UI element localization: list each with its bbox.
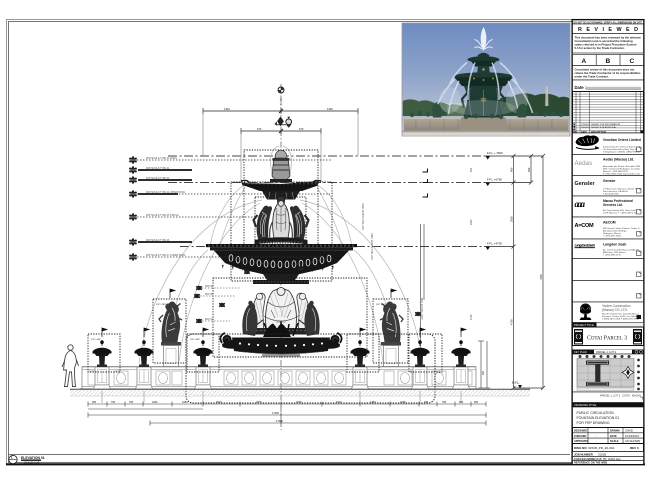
svg-text:12/04/2016: 12/04/2016 <box>625 434 639 438</box>
svg-text:880: 880 <box>482 370 485 375</box>
svg-text:FRP TIER HEIGHT 2870: FRP TIER HEIGHT 2870 <box>362 203 365 230</box>
svg-text:FRP MOULD TYPE 02: FRP MOULD TYPE 02 <box>146 168 170 170</box>
svg-text:2030: 2030 <box>510 216 514 222</box>
svg-text:SCALE 1:25: SCALE 1:25 <box>24 460 40 464</box>
svg-text:-: - <box>596 439 597 443</box>
svg-text:R E V I E W E D: R E V I E W E D <box>578 27 638 33</box>
svg-text:under the Trade Contract.: under the Trade Contract. <box>575 74 609 78</box>
svg-text:840: 840 <box>527 167 531 172</box>
svg-text:1280: 1280 <box>182 401 188 404</box>
svg-text:T +853 2872 3362: T +853 2872 3362 <box>603 236 622 238</box>
svg-text:20/04/16: 20/04/16 <box>581 127 590 129</box>
svg-text:B: B <box>606 58 611 65</box>
svg-text:DRAWING TITLE: DRAWING TITLE <box>575 403 597 407</box>
svg-text:CAD FILE NAME: CAD FILE NAME <box>574 457 595 461</box>
svg-text:Venetian Orient Limited: Venetian Orient Limited <box>603 138 641 142</box>
svg-text:CHECKED: CHECKED <box>574 435 587 438</box>
svg-text:APPROVED: APPROVED <box>574 440 588 443</box>
svg-text:Langdon&Seah: Langdon&Seah <box>575 244 596 248</box>
svg-text:Langdon Seah: Langdon Seah <box>603 243 626 247</box>
svg-text:REV 0: REV 0 <box>630 446 639 450</box>
svg-text:DESIGNED: DESIGNED <box>574 430 587 433</box>
svg-text:660: 660 <box>459 401 464 404</box>
svg-text:JOB NUMBER: JOB NUMBER <box>574 453 593 457</box>
svg-text:1510: 1510 <box>336 401 342 404</box>
svg-text:F.F.L + 7600: F.F.L + 7600 <box>487 151 503 155</box>
svg-text:670: 670 <box>299 127 304 131</box>
svg-text:T 415.433.3700: T 415.433.3700 <box>603 194 619 196</box>
svg-text:PROJECT TITLE: PROJECT TITLE <box>574 323 594 327</box>
svg-text:17400: 17400 <box>276 420 284 423</box>
svg-text:F +853 2833 1822 www.aedas.co: F +853 2833 1822 www.aedas.com <box>603 174 640 176</box>
svg-text:F.F.L +6760: F.F.L +6760 <box>487 178 502 182</box>
svg-text:FRP LAMP: FRP LAMP <box>91 338 102 341</box>
svg-text:PARCEL 1, LOT 2 · COTAI · MACA: PARCEL 1, LOT 2 · COTAI · MACAU <box>600 395 641 398</box>
svg-text:FRP 10: FRP 10 <box>205 319 213 321</box>
svg-text:FRP LAMP: FRP LAMP <box>190 338 201 341</box>
svg-text:FOUNTAIN ELEVATION 01: FOUNTAIN ELEVATION 01 <box>577 416 620 420</box>
svg-text:FRP TIER HEIGHT 1860: FRP TIER HEIGHT 1860 <box>371 233 374 260</box>
svg-text:Telephone: (853) 2882 8888: Telephone: (853) 2882 8888 <box>603 152 641 154</box>
svg-text:17400: 17400 <box>272 412 280 415</box>
svg-text:670: 670 <box>257 127 262 131</box>
svg-text:760: 760 <box>442 401 447 404</box>
svg-text:T (853) 2870 3318 F (853) 287: T (853) 2870 3318 F (853) 2870 3319 <box>602 319 640 321</box>
svg-text:1675: 1675 <box>256 401 262 404</box>
svg-text:21/F Macau T +853 2871 5552: 21/F Macau T +853 2871 5552 <box>603 213 641 215</box>
svg-text:1675: 1675 <box>296 401 302 404</box>
svg-text:KEY PLAN: KEY PLAN <box>574 350 587 354</box>
svg-text:FRP MOULD TYPE 07 LOWER BOWL: FRP MOULD TYPE 07 LOWER BOWL <box>146 255 186 257</box>
svg-text:4730: 4730 <box>470 314 473 320</box>
svg-text:FRP MOULD TYPE 03: FRP MOULD TYPE 03 <box>146 178 170 180</box>
svg-text:-: - <box>596 434 597 438</box>
svg-text:1180: 1180 <box>400 401 406 404</box>
svg-text:900: 900 <box>510 167 514 172</box>
svg-text:5.4 for action by the Trade Co: 5.4 for action by the Trade Contractor. <box>575 46 626 50</box>
svg-text:760: 760 <box>111 401 116 404</box>
svg-text:FRP MOULD TYPE 01 FINIAL: FRP MOULD TYPE 01 FINIAL <box>146 157 178 160</box>
svg-text:ISSUED FOR APPROVAL: ISSUED FOR APPROVAL <box>591 126 617 129</box>
svg-text:4730: 4730 <box>510 319 514 325</box>
svg-text:760: 760 <box>424 401 429 404</box>
svg-text:450: 450 <box>474 401 479 404</box>
svg-text:1: 1 <box>11 455 13 459</box>
svg-text:DRAWN: DRAWN <box>610 430 620 433</box>
svg-text:LAMP HEIGHT 1450: LAMP HEIGHT 1450 <box>421 297 424 320</box>
svg-text:CHAD: CHAD <box>625 429 633 433</box>
svg-text:Date :: Date : <box>575 85 587 90</box>
svg-text:FRP 09: FRP 09 <box>205 294 213 296</box>
svg-text:3151B_PD_20001.dwg: 3151B_PD_20001.dwg <box>594 457 621 461</box>
svg-text:2030: 2030 <box>470 219 473 225</box>
svg-text:COTAI PARCEL 3: COTAI PARCEL 3 <box>587 336 627 342</box>
svg-text:ELEVATION 01: ELEVATION 01 <box>21 456 45 460</box>
svg-text:DATE: DATE <box>610 435 617 438</box>
svg-text:7600: 7600 <box>539 274 543 280</box>
svg-text:Gensler: Gensler <box>603 179 616 183</box>
svg-text:3151B_PD_20-001: 3151B_PD_20-001 <box>588 446 615 450</box>
svg-text:FRP MOULD TYPE 06: FRP MOULD TYPE 06 <box>146 240 170 242</box>
svg-text:C: C <box>630 58 635 65</box>
svg-text:DWG NO: DWG NO <box>574 446 587 450</box>
svg-text:1280: 1280 <box>370 401 376 404</box>
svg-text:FRP 08: FRP 08 <box>205 286 213 288</box>
svg-text:Services Ltd.: Services Ltd. <box>603 203 623 207</box>
svg-text:PUBLIC CIRCULATION: PUBLIC CIRCULATION <box>577 411 615 415</box>
svg-text:Aedas: Aedas <box>575 160 593 167</box>
svg-text:1180: 1180 <box>152 401 158 404</box>
svg-text:1340: 1340 <box>327 107 333 111</box>
svg-text:(Macau) CO.,LTD.: (Macau) CO.,LTD. <box>602 308 628 312</box>
svg-text:760: 760 <box>129 401 134 404</box>
svg-text:A=COM: A=COM <box>575 223 594 229</box>
svg-text:FRP MOULD TYPE 05 STATUE: FRP MOULD TYPE 05 STATUE <box>146 214 179 217</box>
svg-text:F.F.L +4730: F.F.L +4730 <box>487 242 502 246</box>
svg-text:ISSUED FOR INFORMATION: ISSUED FOR INFORMATION <box>591 123 621 126</box>
svg-text:AECOM: AECOM <box>603 221 616 225</box>
svg-text:FOR FRP DRAWING: FOR FRP DRAWING <box>577 421 610 425</box>
svg-text:© photovault: © photovault <box>541 132 556 136</box>
svg-text:FRP MOULD TYPE 04 UPPER BOWL: FRP MOULD TYPE 04 UPPER BOWL <box>146 192 186 194</box>
svg-text:Gensler: Gensler <box>575 181 596 187</box>
svg-text:FRP STATUE 01: FRP STATUE 01 <box>156 303 172 306</box>
svg-text:A: A <box>582 58 587 65</box>
svg-text:3151B: 3151B <box>598 453 606 457</box>
svg-text:SCALE: SCALE <box>610 440 619 443</box>
svg-text:REFERENCE ON THE WEB: REFERENCE ON THE WEB <box>574 461 607 465</box>
svg-text:450: 450 <box>92 401 97 404</box>
svg-text:T +853 2833 1710: T +853 2833 1710 <box>603 255 622 257</box>
svg-text:1340: 1340 <box>224 107 230 111</box>
svg-text:1510: 1510 <box>216 401 222 404</box>
svg-text:AS SHOWN: AS SHOWN <box>625 439 640 443</box>
svg-text:PARCEL 1, LOT 2: PARCEL 1, LOT 2 <box>596 351 617 354</box>
svg-text:FRP STATUE 02: FRP STATUE 02 <box>376 303 392 306</box>
svg-text:840: 840 <box>470 167 473 172</box>
svg-text:DO NOT SCALE DRAWING. VERIFY A: DO NOT SCALE DRAWING. VERIFY ALL DIMENSI… <box>574 20 643 24</box>
svg-text:Aedas (Macau) Ltd.: Aedas (Macau) Ltd. <box>603 158 634 162</box>
